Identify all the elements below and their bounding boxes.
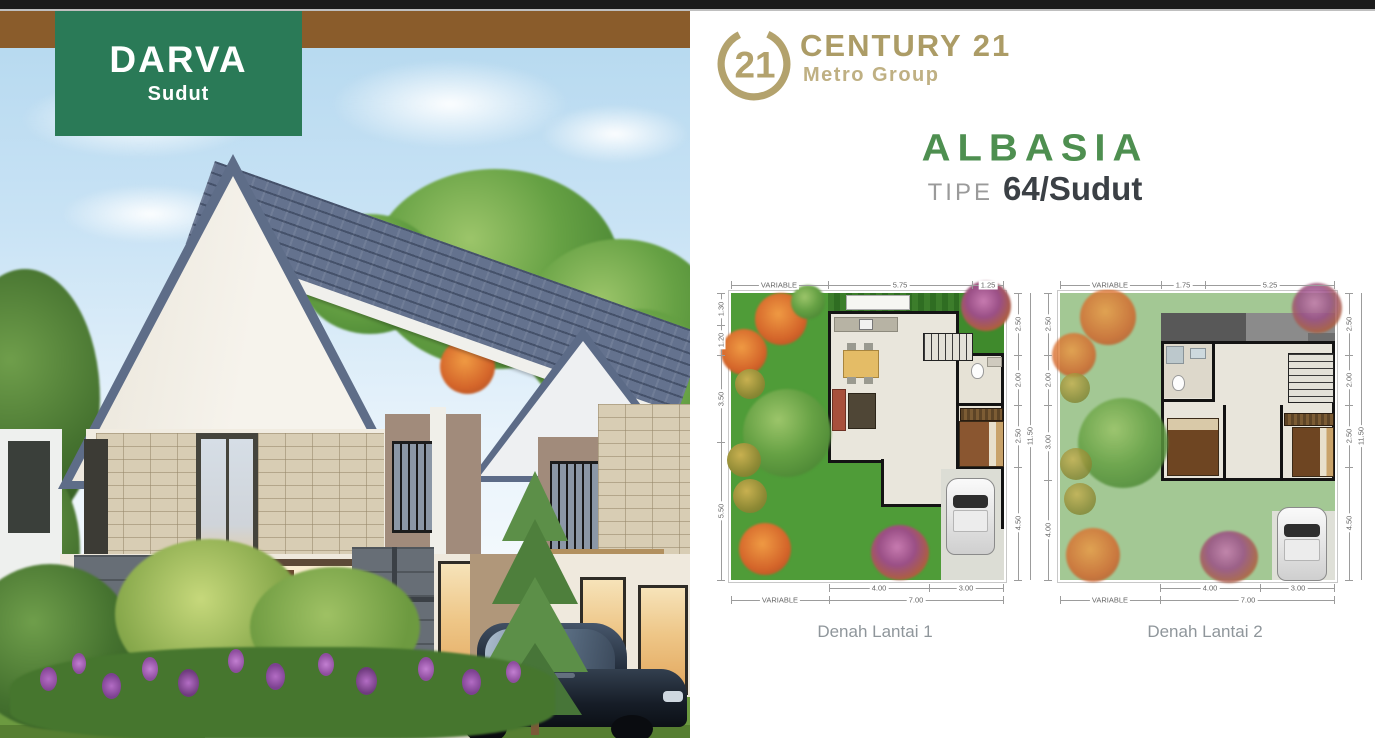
dim-label: 3.00 <box>1044 433 1053 452</box>
garden-bush <box>739 523 791 575</box>
dim-label: 2.50 <box>1345 427 1354 446</box>
plan2-caption: Denah Lantai 2 <box>1105 622 1305 642</box>
car-windshield <box>1284 524 1320 537</box>
tick <box>1345 293 1353 294</box>
century21-logo: 21 <box>713 22 795 106</box>
sink <box>987 357 1002 367</box>
planter-box <box>846 295 910 310</box>
tick <box>1014 467 1022 468</box>
dim-line <box>829 588 1004 589</box>
car-headlight <box>663 691 683 702</box>
garden-bush <box>1066 528 1120 582</box>
dim-label: 2.00 <box>1345 371 1354 390</box>
garden-bush <box>1064 483 1096 515</box>
tick <box>717 293 725 294</box>
wardrobe <box>1284 413 1334 426</box>
project-badge: DARVA Sudut <box>55 9 302 136</box>
wardrobe <box>960 408 1003 421</box>
chair <box>847 377 856 384</box>
tick <box>972 281 973 289</box>
dim-label: 1.20 <box>717 331 726 350</box>
car-roof <box>1284 539 1320 561</box>
tick <box>731 596 732 604</box>
dim-label: 11.50 <box>1026 425 1035 447</box>
tick <box>929 584 930 592</box>
car-wheel <box>611 715 653 738</box>
roof-top-view <box>1161 313 1246 341</box>
logo-number: 21 <box>735 44 776 85</box>
flower <box>178 669 199 697</box>
sofa <box>832 389 846 431</box>
brand-subname: Metro Group <box>803 64 940 87</box>
parked-car <box>1277 507 1327 581</box>
tick <box>1014 405 1022 406</box>
car-windshield <box>953 495 988 508</box>
dim-label: VARIABLE <box>1090 596 1130 605</box>
shower <box>1166 346 1184 364</box>
wall <box>1164 399 1215 402</box>
toilet <box>1172 375 1185 391</box>
tick <box>1014 293 1022 294</box>
flower <box>72 653 86 674</box>
tick <box>1044 580 1052 581</box>
tick <box>1205 281 1206 289</box>
flower <box>142 657 158 681</box>
floor-plan-2: VARIABLE 1.75 5.25 2.50 2.00 3.00 4.00 2… <box>1038 270 1368 620</box>
toilet <box>971 363 984 379</box>
garden-tree <box>1078 398 1168 488</box>
dim-label: 2.00 <box>1014 371 1023 390</box>
dim-label: 7.00 <box>1239 596 1258 605</box>
dim-label: 2.50 <box>1044 315 1053 334</box>
tick <box>717 580 725 581</box>
wall <box>956 403 1004 406</box>
tick <box>717 355 725 356</box>
lot-garden <box>731 293 1004 580</box>
tick <box>1014 580 1022 581</box>
garden-bush <box>1080 289 1136 345</box>
parked-car <box>946 478 995 555</box>
stairs <box>923 333 973 361</box>
dim-label: 5.50 <box>717 502 726 521</box>
dim-label: 2.50 <box>1014 315 1023 334</box>
dim-label: VARIABLE <box>760 596 800 605</box>
dim-label: VARIABLE <box>759 281 799 290</box>
flower <box>318 653 334 676</box>
dim-label: 11.50 <box>1357 425 1366 447</box>
flower <box>418 657 434 681</box>
tick <box>1044 355 1052 356</box>
product-name-wrap: ALBASIA <box>890 126 1180 171</box>
dim-label: 2.50 <box>1345 315 1354 334</box>
type-value: 64/Sudut <box>1003 170 1142 208</box>
tick <box>1014 355 1022 356</box>
window-slot <box>84 439 108 571</box>
sink <box>1190 348 1206 359</box>
dim-label: 2.00 <box>1044 371 1053 390</box>
project-title: DARVA <box>55 39 302 81</box>
dim-label: 1.25 <box>979 281 998 290</box>
car-roof <box>953 510 988 532</box>
garden-bush <box>1292 283 1342 333</box>
flower <box>102 673 121 699</box>
chair <box>847 343 856 350</box>
cloud <box>330 59 570 149</box>
tick <box>1334 596 1335 604</box>
garden-bush <box>1200 531 1258 583</box>
wall <box>1280 405 1283 481</box>
tick <box>717 325 725 326</box>
garden-bush <box>1060 373 1090 403</box>
project-subtitle: Sudut <box>55 83 302 106</box>
neighbor-window <box>8 441 50 533</box>
tick <box>1003 596 1004 604</box>
flower <box>506 661 521 683</box>
dim-label: 5.75 <box>891 281 910 290</box>
tick <box>1160 584 1161 592</box>
tick <box>1334 281 1335 289</box>
dim-label: 4.00 <box>870 584 889 593</box>
tv-cabinet <box>848 393 876 429</box>
product-name: ALBASIA <box>890 127 1180 170</box>
wall <box>1212 341 1215 401</box>
tick <box>1044 405 1052 406</box>
dim-label: 2.50 <box>1014 427 1023 446</box>
dim-label: 1.30 <box>717 300 726 319</box>
tick <box>1003 281 1004 289</box>
tick <box>1060 281 1061 289</box>
tick <box>1160 596 1161 604</box>
dim-label: 4.00 <box>1201 584 1220 593</box>
garden-bush <box>1060 448 1092 480</box>
tick <box>1345 467 1353 468</box>
stone-wall <box>598 404 690 571</box>
top-black-bar <box>0 0 1375 11</box>
cloud <box>540 104 690 164</box>
tick <box>1345 355 1353 356</box>
brand-name: CENTURY 21 <box>800 28 1011 64</box>
dim-label: 7.00 <box>907 596 926 605</box>
lavender-flowers <box>0 609 560 738</box>
garden-bush <box>733 479 767 513</box>
chair <box>864 343 873 350</box>
dim-label: 4.00 <box>1044 521 1053 540</box>
lot-garden <box>1060 293 1335 580</box>
flower <box>462 669 481 695</box>
garden-bush <box>727 443 761 477</box>
stove <box>859 319 873 330</box>
tick <box>717 442 725 443</box>
tick <box>829 584 830 592</box>
product-type: TIPE 64/Sudut <box>890 170 1180 208</box>
garden-bush <box>791 285 825 319</box>
tick <box>1044 480 1052 481</box>
flower <box>40 667 57 691</box>
dim-label: 4.50 <box>1345 514 1354 533</box>
tick <box>731 281 732 289</box>
dim-label: 3.50 <box>717 390 726 409</box>
flower <box>356 667 377 695</box>
garden-bush <box>871 525 929 580</box>
dim-label: 1.75 <box>1174 281 1193 290</box>
tick <box>1260 584 1261 592</box>
dim-label: 4.50 <box>1014 514 1023 533</box>
dim-label: VARIABLE <box>1090 281 1130 290</box>
bed <box>1167 418 1219 476</box>
garden-bush <box>1052 333 1096 377</box>
bed <box>959 421 1004 467</box>
wall <box>1001 469 1004 529</box>
tick <box>829 596 830 604</box>
dining-table <box>843 350 879 378</box>
hero-photo: DARVA Sudut <box>0 9 690 738</box>
tick <box>1345 405 1353 406</box>
plan1-caption: Denah Lantai 1 <box>775 622 975 642</box>
tick <box>1060 596 1061 604</box>
floor-plan-1: VARIABLE 5.75 1.25 1.30 1.20 3.50 5.50 2… <box>713 270 1035 620</box>
tick <box>1345 580 1353 581</box>
bed <box>1292 427 1334 477</box>
dim-line <box>1160 588 1335 589</box>
balcony-railing <box>392 441 432 533</box>
tick <box>1044 293 1052 294</box>
dim-label: 3.00 <box>1289 584 1308 593</box>
stairs <box>1288 353 1334 403</box>
chair <box>864 377 873 384</box>
tick <box>1003 584 1004 592</box>
tick <box>1161 281 1162 289</box>
flower <box>228 649 244 673</box>
tick <box>1334 584 1335 592</box>
type-label: TIPE <box>928 179 993 207</box>
garden-bush <box>735 369 765 399</box>
tick <box>828 281 829 289</box>
garden-bush <box>721 329 767 375</box>
wall <box>1223 405 1226 481</box>
dim-label: 3.00 <box>957 584 976 593</box>
dim-label: 5.25 <box>1261 281 1280 290</box>
flower <box>266 663 285 690</box>
